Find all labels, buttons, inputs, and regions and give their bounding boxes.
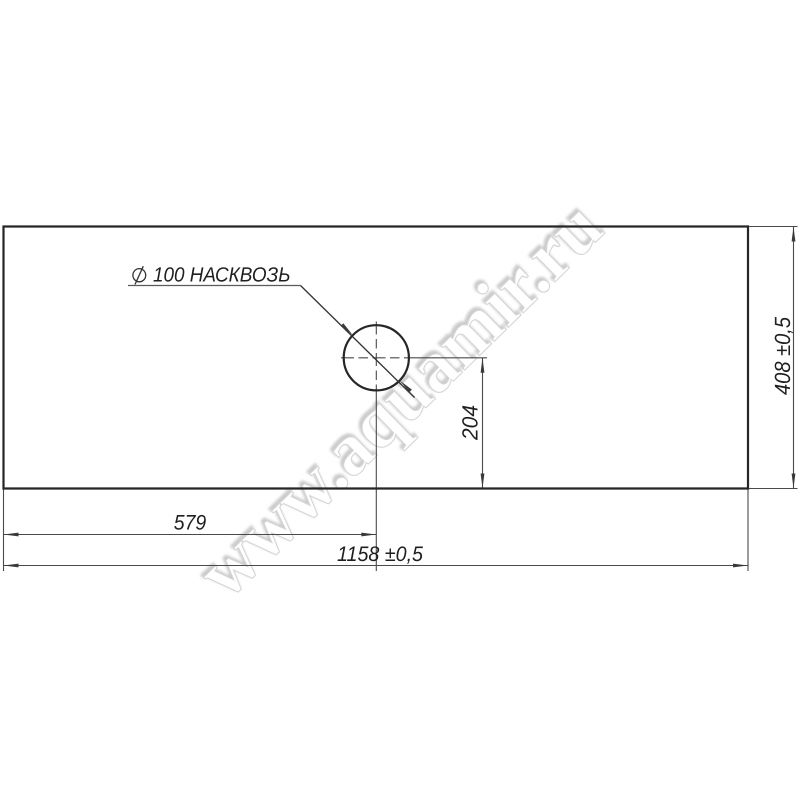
svg-text:100 НАСКВОЗЬ: 100 НАСКВОЗЬ (153, 264, 291, 287)
svg-text:408 ±0,5: 408 ±0,5 (770, 316, 795, 395)
svg-text:579: 579 (174, 512, 207, 535)
svg-text:1158 ±0,5: 1158 ±0,5 (337, 543, 423, 566)
svg-text:204: 204 (458, 405, 483, 441)
